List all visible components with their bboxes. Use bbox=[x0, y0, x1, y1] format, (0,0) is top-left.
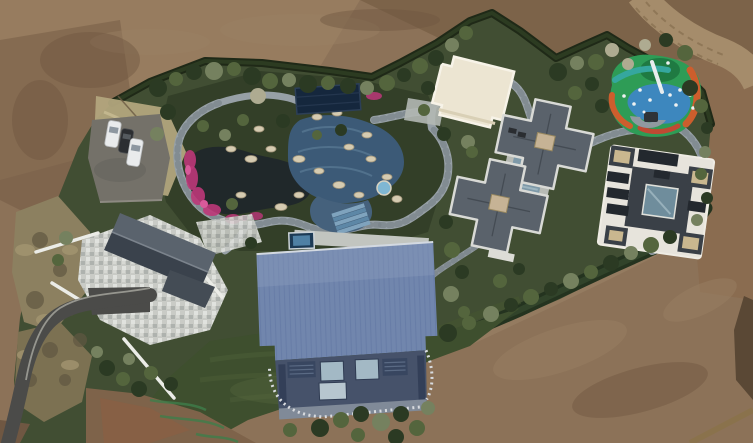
glass-door bbox=[319, 382, 347, 400]
barn-hall: Large hall with standing-seam blue metal… bbox=[256, 225, 440, 420]
spa-water bbox=[293, 235, 310, 246]
ramp-pit bbox=[644, 112, 658, 122]
azalea-light bbox=[185, 165, 191, 175]
roof-skylight bbox=[489, 194, 510, 212]
facade-side-panel bbox=[278, 364, 286, 404]
azalea-light bbox=[200, 200, 208, 208]
round-spa bbox=[377, 181, 391, 195]
roof-skylight bbox=[535, 132, 556, 150]
glass-window bbox=[320, 361, 344, 381]
aerial-photo: Aerial drone view of a landscaped estate… bbox=[0, 0, 753, 443]
glass-window bbox=[355, 359, 379, 380]
aerial-photo-svg: Aerial drone view of a landscaped estate… bbox=[0, 0, 753, 443]
